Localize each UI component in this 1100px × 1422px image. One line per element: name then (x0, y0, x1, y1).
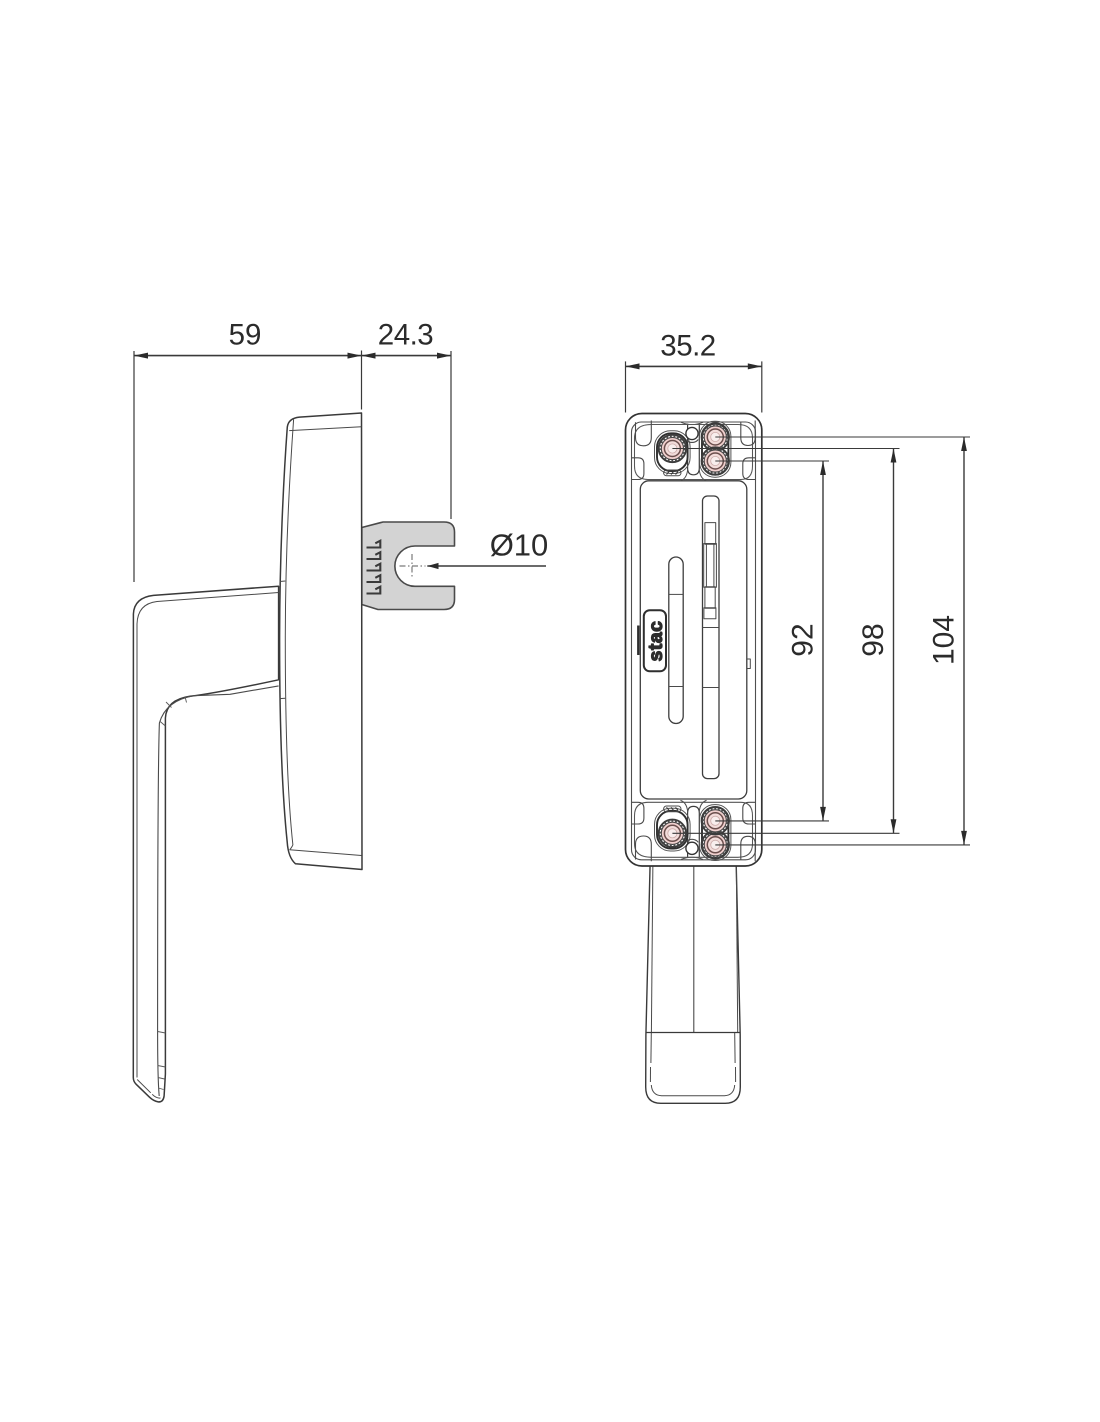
svg-text:98: 98 (857, 623, 890, 656)
svg-text:24.3: 24.3 (378, 319, 434, 352)
svg-text:stac: stac (645, 620, 667, 661)
svg-text:35.2: 35.2 (660, 330, 715, 363)
svg-text:104: 104 (928, 615, 961, 665)
svg-text:92: 92 (787, 623, 820, 656)
svg-text:59: 59 (229, 319, 262, 352)
svg-text:Ø10: Ø10 (490, 528, 549, 563)
